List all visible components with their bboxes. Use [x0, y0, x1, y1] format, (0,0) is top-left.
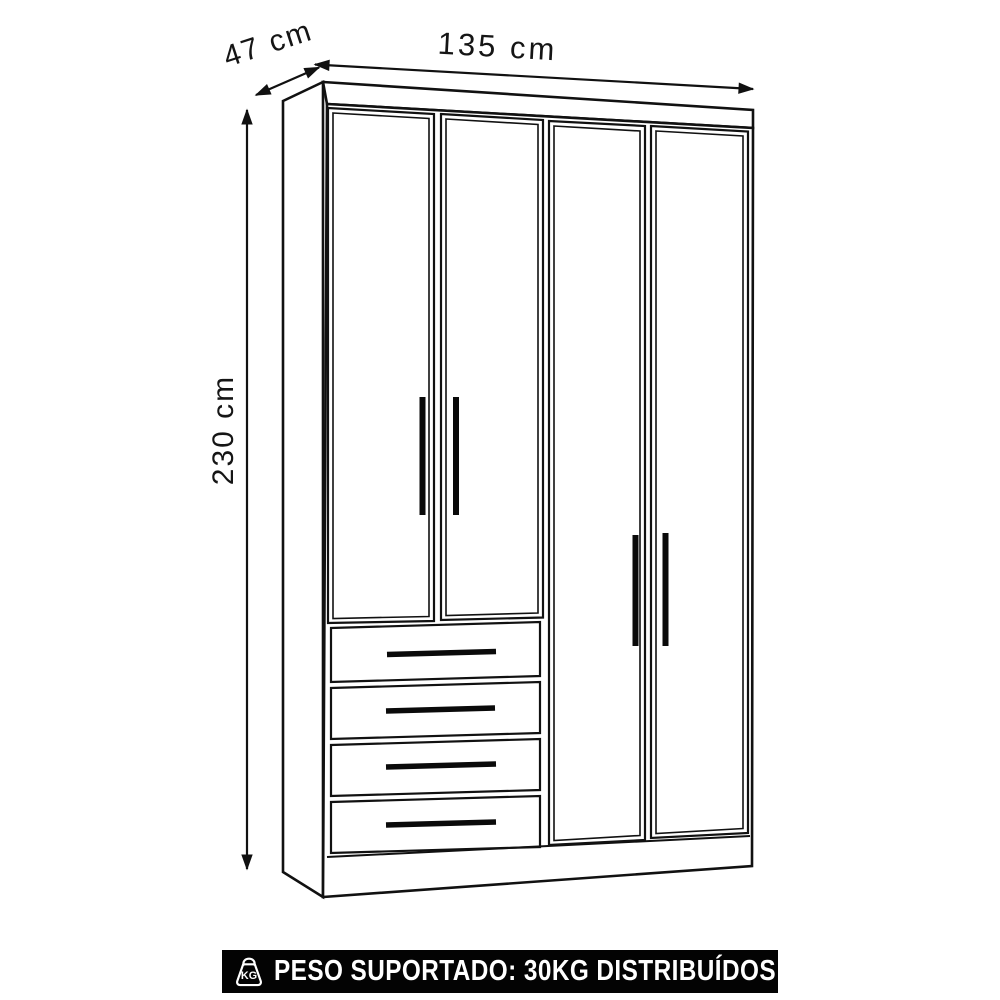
side-panel	[283, 82, 323, 897]
weight-capacity-text: PESO SUPORTADO: 30KG DISTRIBUÍDOS	[274, 957, 776, 986]
drawer-3-handle	[386, 764, 496, 767]
kg-weight-icon: KG	[231, 953, 267, 991]
wardrobe	[283, 82, 753, 897]
product-diagram-page: { "colors": { "background": "#ffffff", "…	[0, 0, 1000, 1000]
drawer-4-handle	[386, 822, 496, 825]
dimension-depth: 47 cm	[219, 14, 319, 95]
dimension-height: 230 cm	[207, 110, 247, 869]
width-label: 135 cm	[437, 26, 558, 68]
dimension-width: 135 cm	[315, 26, 753, 89]
weight-capacity-banner: KG PESO SUPORTADO: 30KG DISTRIBUÍDOS	[222, 950, 778, 993]
height-label: 230 cm	[207, 375, 240, 485]
depth-label: 47 cm	[219, 14, 316, 74]
wardrobe-technical-drawing: 135 cm 47 cm 230 cm	[0, 0, 1000, 1000]
drawer-2-handle	[386, 708, 495, 711]
kg-icon-label: KG	[241, 970, 257, 982]
drawer-1-handle	[387, 652, 496, 655]
